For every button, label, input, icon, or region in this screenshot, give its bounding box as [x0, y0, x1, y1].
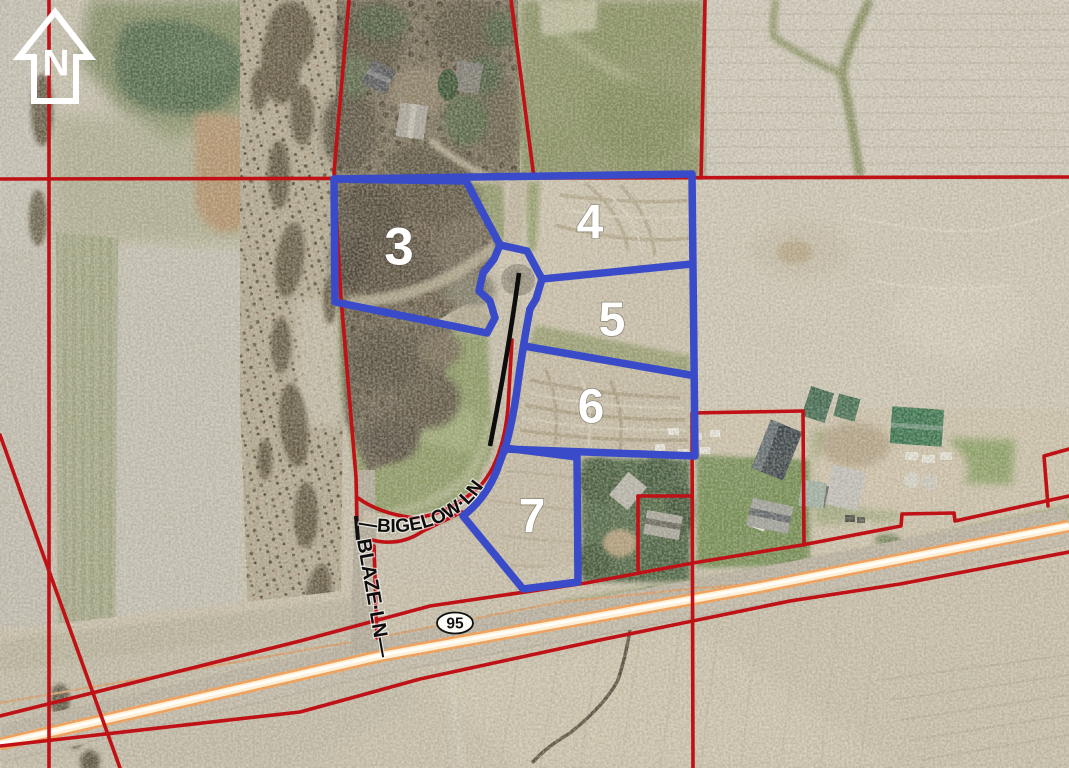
svg-text:N: N — [43, 43, 70, 84]
svg-text:5: 5 — [599, 294, 626, 347]
svg-text:3: 3 — [384, 218, 413, 277]
svg-text:95: 95 — [446, 616, 464, 633]
svg-text:4: 4 — [577, 197, 604, 250]
svg-text:7: 7 — [519, 491, 546, 544]
svg-text:6: 6 — [578, 381, 605, 434]
